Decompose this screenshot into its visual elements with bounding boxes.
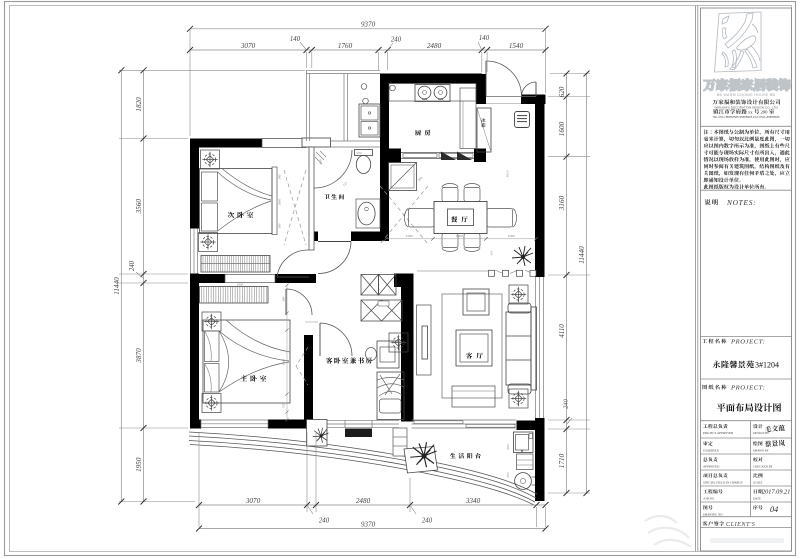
svg-text:955: 955: [506, 472, 510, 477]
svg-text:1580: 1580: [508, 234, 515, 238]
svg-text:3870: 3870: [135, 348, 143, 364]
svg-text:240: 240: [391, 37, 402, 44]
svg-text:140: 140: [290, 36, 301, 43]
svg-text:1760: 1760: [338, 42, 353, 50]
svg-text:735: 735: [281, 403, 285, 408]
svg-text:DRAWN BY: DRAWN BY: [752, 448, 770, 452]
svg-text:1800: 1800: [278, 198, 282, 205]
svg-text:SCALE: SCALE: [753, 480, 762, 484]
svg-text:WANJIAFU DECORATION DESIGN: WANJIAFU DECORATION DESIGN CO., LTD: [714, 105, 778, 109]
svg-text:CHECKED BY: CHECKED BY: [753, 464, 774, 468]
svg-text:PROJECT:: PROJECT:: [730, 384, 765, 391]
svg-text:1600: 1600: [558, 121, 566, 136]
svg-text:580: 580: [278, 223, 282, 228]
svg-text:TEL:0511-85858585 85858585: TEL:0511-85858585 85858585 FAX:0511-8585…: [713, 115, 780, 119]
svg-text:1800: 1800: [281, 358, 285, 365]
svg-text:900: 900: [356, 151, 361, 155]
svg-text:3560: 3560: [135, 199, 143, 215]
svg-text:9370: 9370: [361, 21, 376, 29]
svg-text:1540: 1540: [509, 42, 524, 50]
svg-text:2480: 2480: [356, 497, 371, 505]
svg-text:3#1204: 3#1204: [755, 360, 779, 369]
svg-text:PROJECT:: PROJECT:: [730, 338, 765, 345]
svg-text:1710: 1710: [558, 453, 566, 468]
svg-text:3340: 3340: [465, 497, 481, 505]
svg-text:11440: 11440: [578, 246, 586, 264]
svg-text:11440: 11440: [113, 277, 121, 295]
svg-text:300: 300: [490, 250, 494, 255]
svg-text:DESIGN BY: DESIGN BY: [752, 431, 770, 435]
svg-text:SPECIAL FIELD IN CHARGE: SPECIAL FIELD IN CHARGE: [703, 480, 743, 484]
svg-text:3070: 3070: [240, 42, 256, 50]
svg-text:580: 580: [278, 174, 282, 179]
svg-text:240: 240: [563, 398, 570, 408]
svg-text:4110: 4110: [558, 324, 566, 338]
svg-text:1950: 1950: [135, 457, 143, 472]
svg-text:620: 620: [558, 86, 566, 97]
svg-text:04: 04: [770, 505, 778, 514]
svg-text:9370: 9370: [361, 520, 376, 528]
svg-text:1400: 1400: [456, 234, 463, 238]
svg-text:600: 600: [506, 444, 510, 449]
svg-text:580: 580: [281, 296, 285, 301]
svg-text:DATE: DATE: [752, 496, 761, 500]
svg-text:3070: 3070: [245, 497, 261, 505]
svg-text:xx: xx: [748, 109, 753, 114]
svg-text:240: 240: [422, 518, 433, 525]
svg-text:2017.09.21: 2017.09.21: [762, 489, 790, 496]
svg-text:900: 900: [319, 159, 323, 164]
svg-text:240: 240: [129, 260, 136, 271]
svg-text:APPROVED: APPROVED: [702, 464, 720, 468]
svg-text:1820: 1820: [135, 97, 143, 112]
svg-text:1580: 1580: [406, 234, 413, 238]
svg-text:200: 200: [761, 109, 769, 114]
svg-text:EXAMINED: EXAMINED: [702, 448, 720, 452]
svg-text:140: 140: [479, 35, 490, 42]
svg-text:3160: 3160: [558, 195, 566, 211]
svg-text:PROJECT APPROVER: PROJECT APPROVER: [702, 431, 733, 435]
svg-text:3010: 3010: [506, 170, 510, 177]
svg-text:BB WARM DOOBIE HOUSE BB: BB WARM DOOBIE HOUSE BB: [717, 93, 776, 97]
svg-text:240: 240: [319, 518, 330, 525]
svg-text:1900: 1900: [237, 282, 244, 286]
svg-text:JOB NO: JOB NO: [703, 496, 715, 500]
svg-text:DRAWING NO: DRAWING NO: [702, 512, 723, 516]
svg-text:2480: 2480: [427, 42, 442, 50]
svg-text:NOTES:: NOTES:: [726, 198, 756, 207]
svg-text:CLIENT'S: CLIENT'S: [726, 521, 755, 528]
